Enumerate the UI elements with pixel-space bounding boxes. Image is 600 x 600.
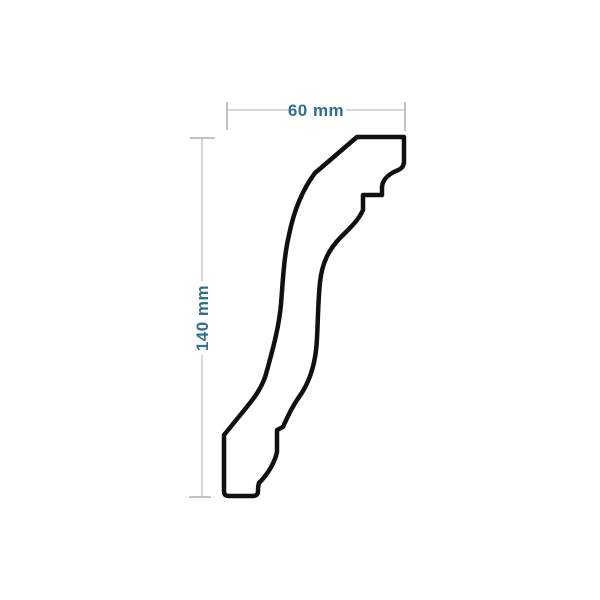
height-dimension-label: 140 mm	[193, 285, 212, 351]
molding-profile-outline	[224, 137, 404, 496]
diagram-canvas: 60 mm 140 mm	[0, 0, 600, 600]
height-dimension: 140 mm	[189, 138, 215, 497]
width-dimension-label: 60 mm	[288, 101, 344, 120]
molding-dimension-diagram: 60 mm 140 mm	[0, 0, 600, 600]
width-dimension: 60 mm	[227, 100, 405, 131]
